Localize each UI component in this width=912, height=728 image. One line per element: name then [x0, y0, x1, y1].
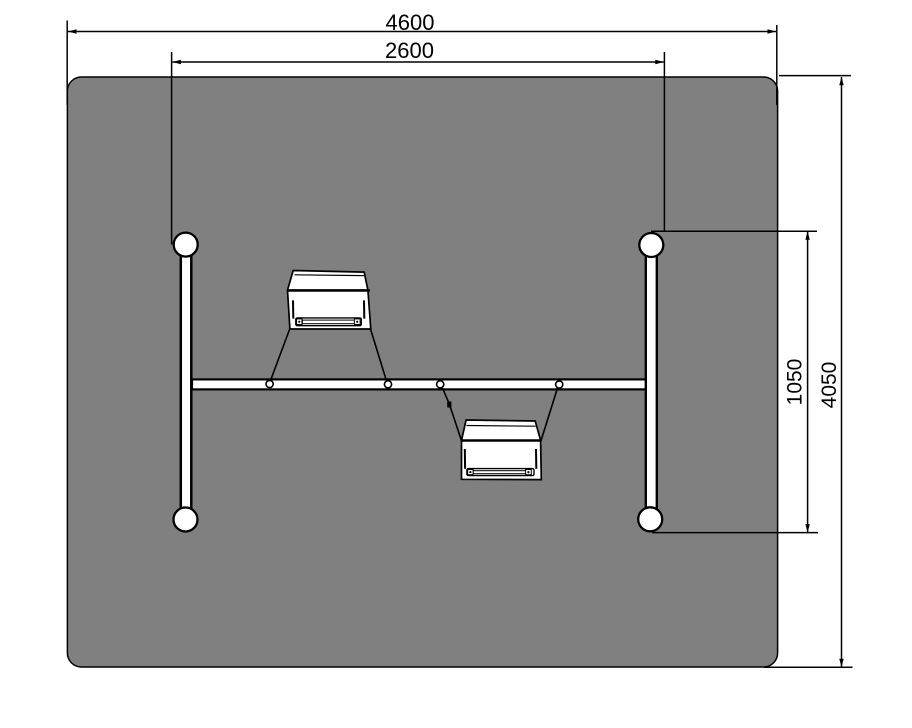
svg-text:2600: 2600 — [385, 38, 434, 63]
svg-text:1050: 1050 — [784, 359, 807, 406]
svg-text:4050: 4050 — [818, 362, 841, 409]
svg-text:4600: 4600 — [386, 10, 435, 35]
